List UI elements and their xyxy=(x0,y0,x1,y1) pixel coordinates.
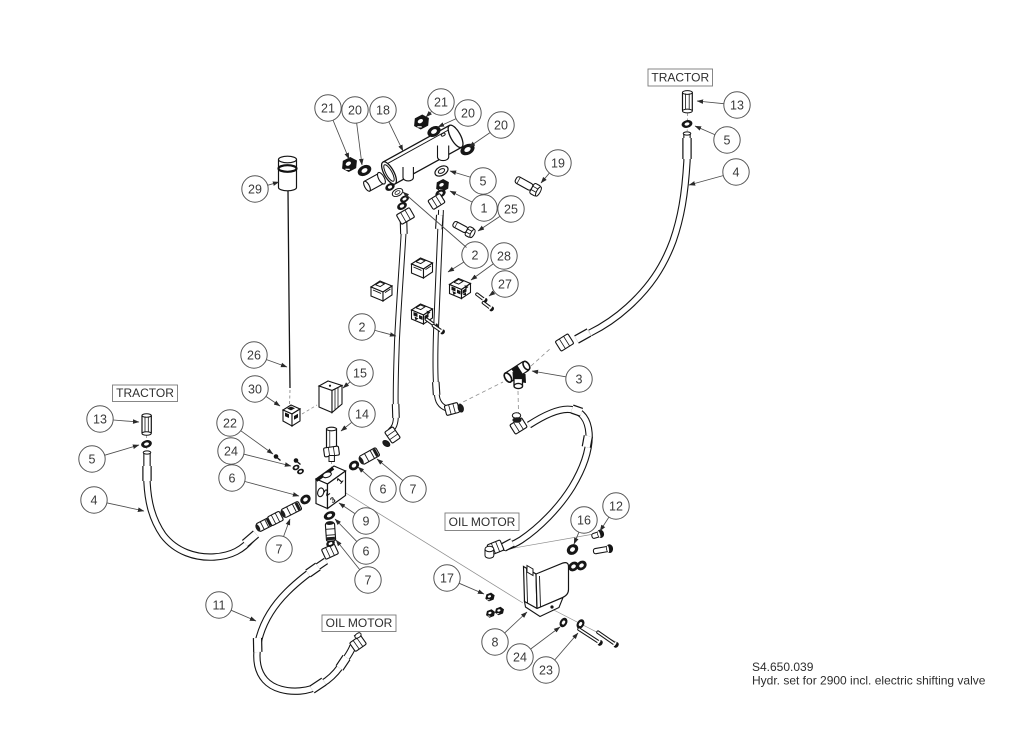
svg-text:21: 21 xyxy=(434,95,448,109)
svg-text:24: 24 xyxy=(224,444,238,458)
svg-text:30: 30 xyxy=(248,382,262,396)
svg-text:2: 2 xyxy=(359,320,366,334)
svg-text:13: 13 xyxy=(93,412,107,426)
svg-text:24: 24 xyxy=(513,650,527,664)
svg-text:3: 3 xyxy=(576,372,583,386)
svg-text:5: 5 xyxy=(724,133,731,147)
svg-text:7: 7 xyxy=(365,573,372,587)
svg-text:22: 22 xyxy=(223,416,237,430)
svg-text:4: 4 xyxy=(91,493,98,507)
svg-text:6: 6 xyxy=(380,482,387,496)
svg-text:8: 8 xyxy=(492,635,499,649)
svg-text:20: 20 xyxy=(494,118,508,132)
svg-text:2: 2 xyxy=(472,248,479,262)
svg-text:20: 20 xyxy=(461,106,475,120)
svg-text:16: 16 xyxy=(577,513,591,527)
svg-text:14: 14 xyxy=(355,407,369,421)
svg-text:11: 11 xyxy=(213,598,226,612)
svg-text:7: 7 xyxy=(410,482,417,496)
svg-text:13: 13 xyxy=(730,98,744,112)
svg-text:21: 21 xyxy=(321,101,335,115)
svg-text:7: 7 xyxy=(276,542,283,556)
svg-text:28: 28 xyxy=(497,249,511,263)
svg-text:25: 25 xyxy=(504,202,518,216)
svg-text:19: 19 xyxy=(551,156,565,170)
svg-text:15: 15 xyxy=(353,366,367,380)
svg-text:17: 17 xyxy=(440,571,454,585)
svg-text:26: 26 xyxy=(247,348,261,362)
svg-text:OIL MOTOR: OIL MOTOR xyxy=(449,515,516,529)
svg-text:23: 23 xyxy=(539,663,553,677)
svg-text:29: 29 xyxy=(248,182,262,196)
svg-text:5: 5 xyxy=(480,174,487,188)
svg-text:20: 20 xyxy=(348,103,362,117)
svg-text:6: 6 xyxy=(363,544,370,558)
svg-text:5: 5 xyxy=(89,452,96,466)
svg-text:27: 27 xyxy=(498,277,512,291)
svg-text:OIL MOTOR: OIL MOTOR xyxy=(326,616,393,630)
svg-text:Hydr. set for 2900 incl. elect: Hydr. set for 2900 incl. electric shifti… xyxy=(752,674,986,688)
svg-text:4: 4 xyxy=(733,165,740,179)
svg-text:18: 18 xyxy=(376,103,390,117)
svg-text:9: 9 xyxy=(363,514,370,528)
svg-text:1: 1 xyxy=(481,201,488,215)
svg-text:S4.650.039: S4.650.039 xyxy=(752,660,814,674)
svg-text:TRACTOR: TRACTOR xyxy=(651,71,709,85)
svg-text:12: 12 xyxy=(609,499,623,513)
svg-text:6: 6 xyxy=(229,471,236,485)
svg-text:TRACTOR: TRACTOR xyxy=(116,386,174,400)
